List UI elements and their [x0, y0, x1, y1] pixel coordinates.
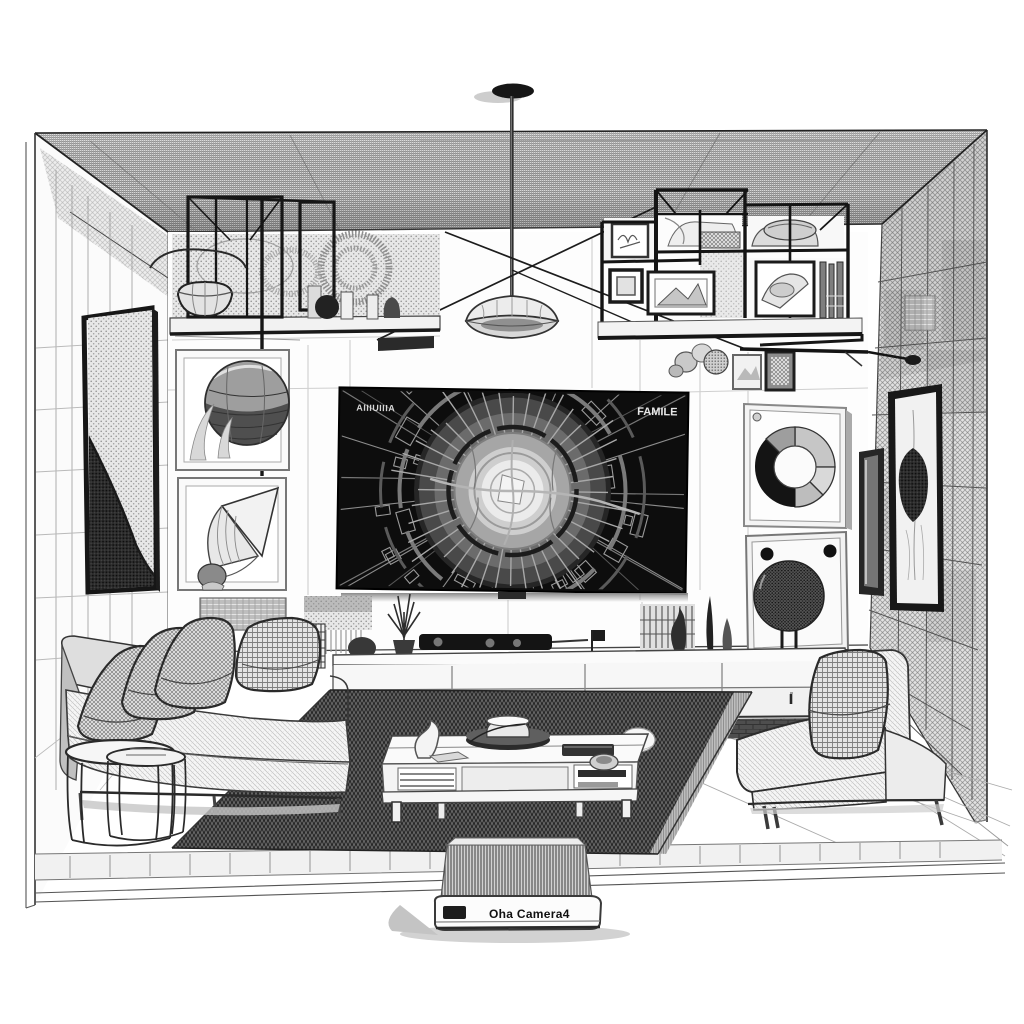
- svg-text:AIIIUIIIA: AIIIUIIIA: [356, 403, 395, 414]
- svg-text:FAMILE: FAMILE: [637, 406, 678, 419]
- svg-text:Oha Camera4: Oha Camera4: [489, 907, 570, 921]
